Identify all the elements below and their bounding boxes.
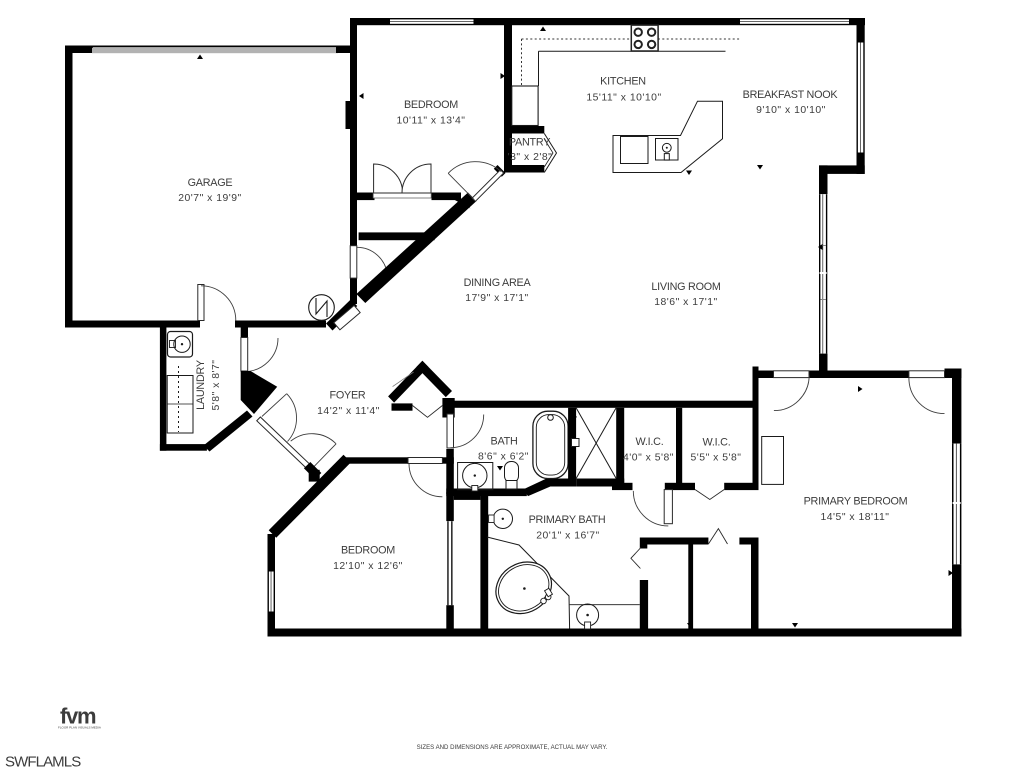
svg-text:BEDROOM: BEDROOM (404, 99, 458, 111)
svg-text:18'6" x 17'1": 18'6" x 17'1" (654, 297, 718, 308)
svg-text:BREAKFAST NOOK: BREAKFAST NOOK (743, 89, 839, 101)
svg-text:FOYER: FOYER (330, 390, 366, 402)
svg-text:LAUNDRY: LAUNDRY (195, 360, 207, 410)
svg-text:14'2" x 11'4": 14'2" x 11'4" (317, 406, 380, 417)
svg-text:GARAGE: GARAGE (188, 177, 233, 189)
svg-text:PRIMARY BATH: PRIMARY BATH (529, 514, 606, 526)
svg-text:10'11" x 13'4": 10'11" x 13'4" (397, 116, 466, 127)
svg-text:W.I.C.: W.I.C. (703, 437, 731, 449)
svg-text:PRIMARY BEDROOM: PRIMARY BEDROOM (804, 496, 908, 508)
svg-text:9'10" x 10'10": 9'10" x 10'10" (756, 105, 826, 116)
svg-text:W.I.C.: W.I.C. (636, 436, 664, 448)
svg-text:KITCHEN: KITCHEN (600, 76, 646, 88)
svg-text:17'9" x 17'1": 17'9" x 17'1" (465, 293, 529, 304)
svg-text:BEDROOM: BEDROOM (341, 545, 395, 557)
svg-text:DINING AREA: DINING AREA (464, 277, 532, 289)
svg-text:'3" x 2'8": '3" x 2'8" (508, 152, 553, 163)
svg-text:SWFLAMLS: SWFLAMLS (5, 754, 81, 768)
svg-text:14'5" x 18'11": 14'5" x 18'11" (821, 512, 890, 523)
svg-text:LIVING ROOM: LIVING ROOM (651, 281, 720, 293)
svg-text:5'8" x 8'7": 5'8" x 8'7" (211, 360, 222, 411)
svg-text:12'10" x 12'6": 12'10" x 12'6" (333, 561, 403, 572)
svg-text:20'7" x 19'9": 20'7" x 19'9" (178, 193, 242, 204)
svg-text:4'0" x 5'8": 4'0" x 5'8" (623, 453, 674, 464)
svg-text:15'11" x 10'10": 15'11" x 10'10" (586, 93, 661, 104)
svg-text:BATH: BATH (491, 436, 518, 448)
svg-text:8'6" x 6'2": 8'6" x 6'2" (478, 452, 529, 463)
svg-text:20'1" x 16'7": 20'1" x 16'7" (536, 531, 600, 542)
svg-text:FLOOR PLAN VISUALS MEDIA: FLOOR PLAN VISUALS MEDIA (58, 726, 101, 730)
svg-text:PANTRY: PANTRY (509, 137, 550, 149)
svg-text:SIZES AND DIMENSIONS ARE APPRO: SIZES AND DIMENSIONS ARE APPROXIMATE, AC… (417, 744, 608, 751)
svg-text:5'5" x 5'8": 5'5" x 5'8" (691, 453, 742, 464)
